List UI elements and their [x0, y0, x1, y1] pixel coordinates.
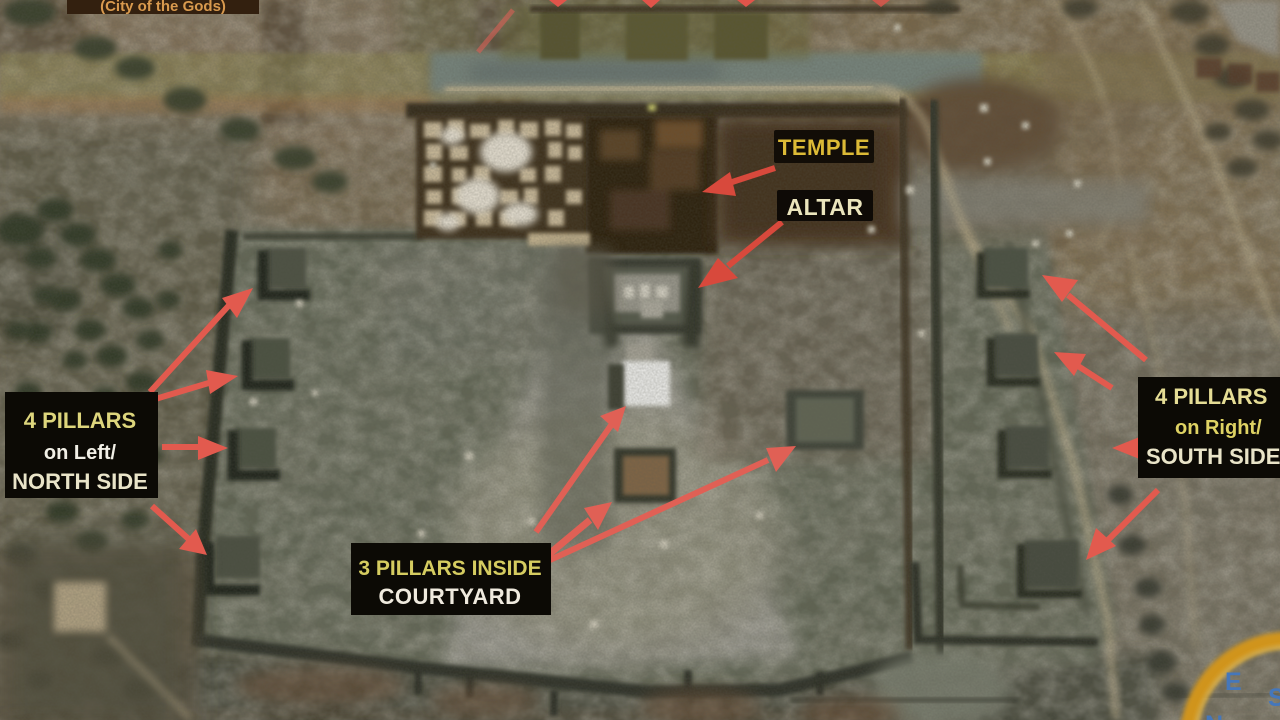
svg-text:3 PILLARS INSIDE: 3 PILLARS INSIDE	[358, 557, 541, 580]
svg-text:SOUTH SIDE: SOUTH SIDE	[1146, 444, 1280, 469]
svg-text:S: S	[1268, 684, 1280, 712]
svg-text:COURTYARD: COURTYARD	[378, 584, 521, 609]
svg-text:NORTH SIDE: NORTH SIDE	[12, 469, 148, 494]
svg-text:N: N	[1205, 711, 1223, 720]
svg-text:TEMPLE: TEMPLE	[778, 135, 870, 160]
svg-text:E: E	[1225, 668, 1242, 696]
svg-text:(City of the Gods): (City of the Gods)	[100, 0, 226, 15]
svg-text:ALTAR: ALTAR	[786, 194, 863, 220]
svg-text:4 PILLARS: 4 PILLARS	[24, 408, 136, 433]
svg-text:4 PILLARS: 4 PILLARS	[1155, 384, 1267, 409]
svg-text:on Right/: on Right/	[1175, 417, 1262, 439]
svg-text:on Left/: on Left/	[44, 442, 117, 464]
